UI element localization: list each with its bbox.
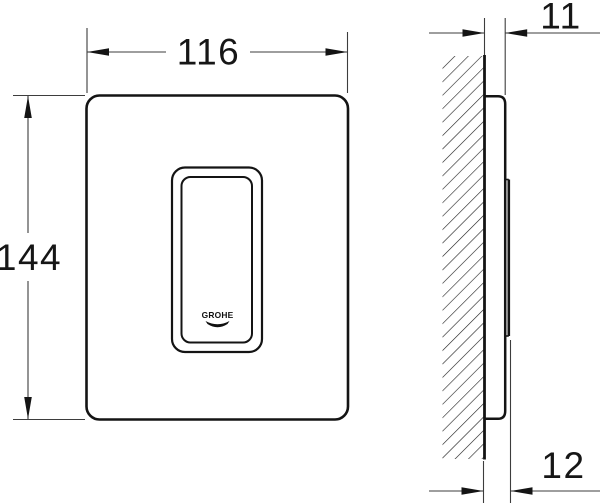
arrowhead-left — [511, 487, 533, 495]
grohe-logo: GROHE — [202, 310, 234, 327]
grohe-logo-wreath — [206, 321, 230, 327]
width-dimension-label: 116 — [177, 32, 241, 73]
arrowhead-down — [24, 397, 32, 419]
depth-bottom-dimension-label: 12 — [541, 445, 585, 486]
technical-drawing-canvas: GROHE 116 144 — [0, 0, 600, 504]
plate-profile-outline — [485, 96, 506, 419]
depth-top-dimension-label: 11 — [540, 0, 581, 37]
height-dimension-label: 144 — [0, 237, 62, 278]
grohe-logo-text: GROHE — [202, 310, 234, 320]
plate-outline — [87, 96, 349, 420]
arrowhead-right — [462, 487, 484, 495]
width-dimension: 116 — [87, 28, 348, 93]
height-dimension: 144 — [0, 96, 85, 420]
arrowhead-up — [24, 96, 32, 118]
technical-drawing-page: GROHE 116 144 — [0, 0, 600, 504]
arrowhead-left — [505, 29, 527, 37]
wall-hatching — [443, 56, 485, 459]
side-view — [443, 55, 509, 460]
arrowhead-right — [463, 29, 485, 37]
arrowhead-right — [326, 48, 348, 56]
front-view: GROHE — [87, 96, 349, 420]
arrowhead-left — [87, 48, 109, 56]
